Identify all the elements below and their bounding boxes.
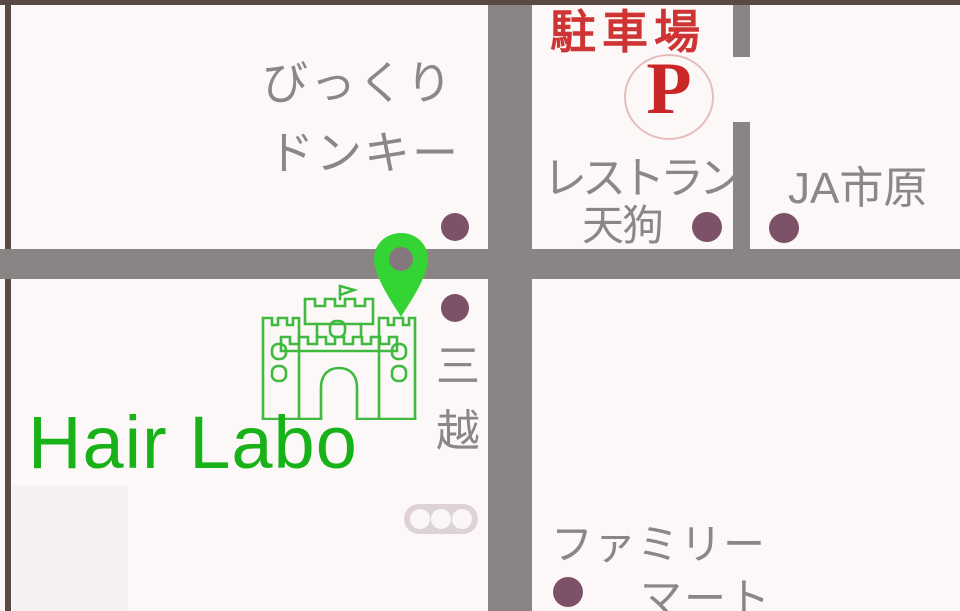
label-mitsukoshi-char1: 三: [436, 345, 480, 389]
map-border-top: [0, 0, 960, 5]
label-family-mart-line2: マート: [640, 578, 772, 611]
access-map: びっくり ドンキー 駐車場 P レストラン 天狗 JA市原 三 越 Hair L…: [0, 0, 960, 611]
label-family-mart-line1: ファミリー: [551, 524, 766, 566]
marker-dot-mitsukoshi: [441, 294, 469, 322]
label-mitsukoshi-char2: 越: [436, 410, 480, 454]
label-bikkuri-line1: びっくり: [262, 60, 454, 106]
road-vertical-parking-upper: [733, 5, 750, 57]
road-horizontal: [0, 249, 960, 279]
traffic-light-icon: [404, 504, 478, 534]
map-border-left: [5, 0, 11, 611]
parking-circle-icon: P: [624, 54, 714, 140]
label-ja-ichihara: JA市原: [788, 167, 927, 211]
label-tengu-line1: レストラン: [543, 157, 738, 201]
road-vertical-main: [488, 5, 532, 611]
label-bikkuri-line2: ドンキー: [268, 130, 460, 176]
marker-dot-tengu: [692, 212, 722, 242]
label-parking: 駐車場: [550, 9, 706, 55]
parking-p-symbol: P: [646, 52, 691, 126]
traffic-bulb: [431, 509, 451, 529]
marker-dot-bikkuri-donkey: [441, 213, 469, 241]
label-tengu-line2: 天狗: [582, 205, 662, 247]
building-block: [12, 486, 128, 611]
shop-name: Hair Labo: [28, 406, 358, 480]
marker-dot-family-mart: [553, 577, 583, 607]
traffic-bulb: [452, 509, 472, 529]
marker-dot-ja-ichihara: [769, 213, 799, 243]
map-pin-icon: [370, 231, 432, 319]
traffic-bulb: [410, 509, 430, 529]
